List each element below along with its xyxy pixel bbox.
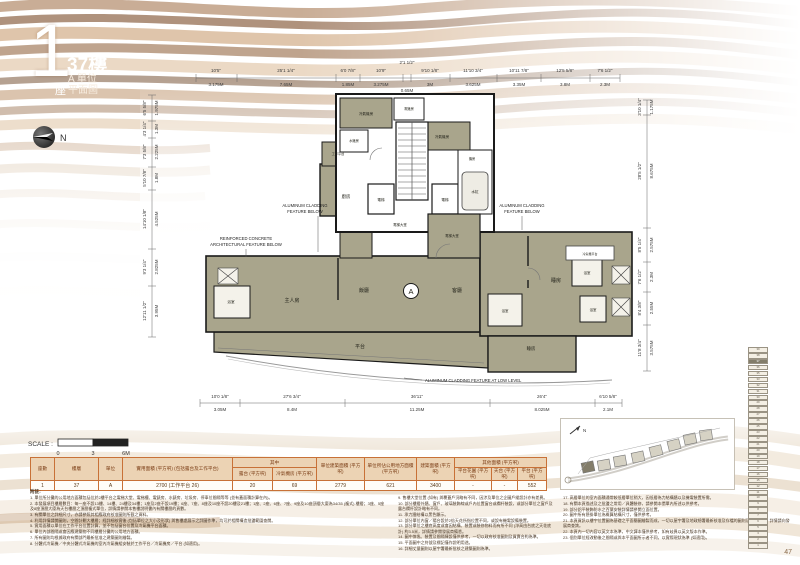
dim-label: 3.625M [465, 82, 480, 87]
annotation: ARCHITECTURAL FEATURE BELOW [210, 242, 282, 247]
dim-label: 1.3M [154, 124, 159, 134]
room-label: 電梯大堂 [445, 233, 459, 238]
dim-label: 3M [427, 82, 434, 87]
room-label: 廚房 [342, 193, 351, 200]
dim-label: 10'0 1/8" [211, 394, 229, 399]
scale-label: SCALE : [28, 441, 53, 448]
scale-tick: 0 [56, 451, 59, 457]
dim-label: 10'11 7/8" [509, 68, 529, 73]
dim-label: 2.575M [649, 237, 654, 252]
dim-label: 26'4" [537, 394, 547, 399]
dim-label: 2.3M [600, 82, 610, 87]
dim-label: 3'10 1/4" [637, 98, 642, 116]
room-label: 電錶房 [404, 106, 414, 111]
dim-label: 10'9" [376, 68, 386, 73]
scale-tick: 6M [122, 451, 130, 457]
dim-label: 1.85M [342, 82, 355, 87]
dim-label: 8'5 1/4" [637, 237, 642, 252]
dim-label: 27'6 3/4" [283, 394, 301, 399]
room-label: 電梯大堂 [393, 222, 407, 227]
brochure-page: 1 座 37樓 A 單位 平面圖 N 10'5" 25'1 1/4" [0, 0, 800, 565]
dim-label: 8.4M [287, 407, 297, 412]
room-label: 冷氣機平台 [582, 251, 597, 256]
dim-label: 8'4 3/8" [637, 300, 642, 315]
annotation: FEATURE BELOW [504, 209, 540, 214]
dim-label: 1.175M [649, 99, 654, 114]
room-label: 冷氣機房 [435, 134, 450, 139]
dim-label: 25'1 1/4" [277, 68, 295, 73]
room-label: 機房 [469, 156, 475, 161]
room-label: 水錶房 [349, 138, 359, 143]
dim-label: 36'11" [411, 394, 424, 399]
annotation: ALUMINUM CLADDING [282, 203, 327, 208]
dim-label: 1.8M [154, 173, 159, 183]
dim-label: 3.95M [154, 304, 159, 317]
dim-label: 11.25M [410, 407, 425, 412]
room-label: 水缸 [471, 189, 479, 194]
annotation: FEATURE BELOW [287, 209, 323, 214]
dim-label: 7'6 1/2" [598, 68, 613, 73]
dim-label: 2.825M [154, 259, 159, 274]
room-label: 工作平台 [332, 151, 345, 156]
dim-label: 3.275M [373, 82, 388, 87]
dim-label: 7'6 1/2" [637, 269, 642, 284]
room-label: 電梯 [377, 197, 385, 202]
north-label: N [60, 133, 67, 143]
room-label: 飯廳 [359, 287, 369, 294]
dim-label: 2.55M [649, 301, 654, 314]
dim-label: 3.575M [649, 340, 654, 355]
dim-label: 12'5 5/8" [556, 68, 574, 73]
dim-label: 3.35M [513, 82, 526, 87]
dim-label: 5'10 7/8" [142, 169, 147, 187]
north-compass-icon: N [33, 126, 67, 148]
dim-label: 8.025M [534, 407, 549, 412]
dim-label: 3.05M [214, 407, 227, 412]
dim-label: 7'3 5/8" [142, 144, 147, 159]
dim-label: 7.65M [280, 82, 293, 87]
dim-label: 4.525M [154, 211, 159, 226]
dim-label: 6'0 7/8" [341, 68, 356, 73]
dim-label: 11'8 3/4" [637, 339, 642, 357]
room-label: 冷氣機房 [359, 111, 374, 116]
room-label: 浴室 [584, 270, 591, 275]
dim-label: 3.175M [208, 82, 223, 87]
dim-label: 3.8M [560, 82, 570, 87]
dim-label: 9'3 1/4" [142, 259, 147, 274]
unit-mark: A [408, 287, 413, 296]
dim-label: 4'3 1/4" [142, 121, 147, 136]
dim-label: 10'5" [211, 68, 221, 73]
dim-label: 6'10 5/8" [599, 394, 617, 399]
room-label: 浴室 [502, 308, 509, 313]
room-label: 睡房 [551, 277, 561, 284]
dim-label: 9'10 1/8" [421, 68, 439, 73]
scale-tick: 3 [91, 451, 94, 457]
dim-label: 2.3M [649, 272, 654, 282]
room-label: 浴室 [590, 307, 597, 312]
annotation: ALUMINUM CLADDING [499, 203, 544, 208]
dim-label: 0.65M [401, 88, 414, 93]
room-label: 客廳 [452, 287, 462, 294]
room-label: 平台 [355, 343, 365, 350]
dim-label: 2'1 1/2" [400, 60, 415, 65]
annotation: REINFORCED CONCRETE [220, 236, 273, 241]
dim-label: 1.975M [154, 100, 159, 115]
dim-label: 14'10 1/8" [142, 209, 147, 229]
dim-label: 12'11 1/2" [142, 301, 147, 321]
dim-label: 2.225M [154, 144, 159, 159]
room-label: 主人房 [284, 297, 299, 304]
room-label: 電梯 [441, 197, 449, 202]
scale-bar: SCALE : 0 3 6M [28, 439, 130, 457]
dim-label: 2.1M [603, 407, 613, 412]
dim-label: 6'5 5/8" [142, 100, 147, 115]
dim-label: 8.675M [649, 163, 654, 178]
dim-label: 11'10 3/4" [463, 68, 483, 73]
floor-plan: N 10'5" 25'1 1/4" 6'0 7/8" 10'9" 2'1 1/2… [0, 0, 800, 565]
room-label: 睡房 [527, 345, 536, 352]
room-label: 浴室 [227, 299, 235, 304]
dim-label: 28'5 1/2" [637, 162, 642, 180]
annotation: ALUMINUM CLADDING FEATURE AT LOW LEVEL [425, 378, 522, 383]
